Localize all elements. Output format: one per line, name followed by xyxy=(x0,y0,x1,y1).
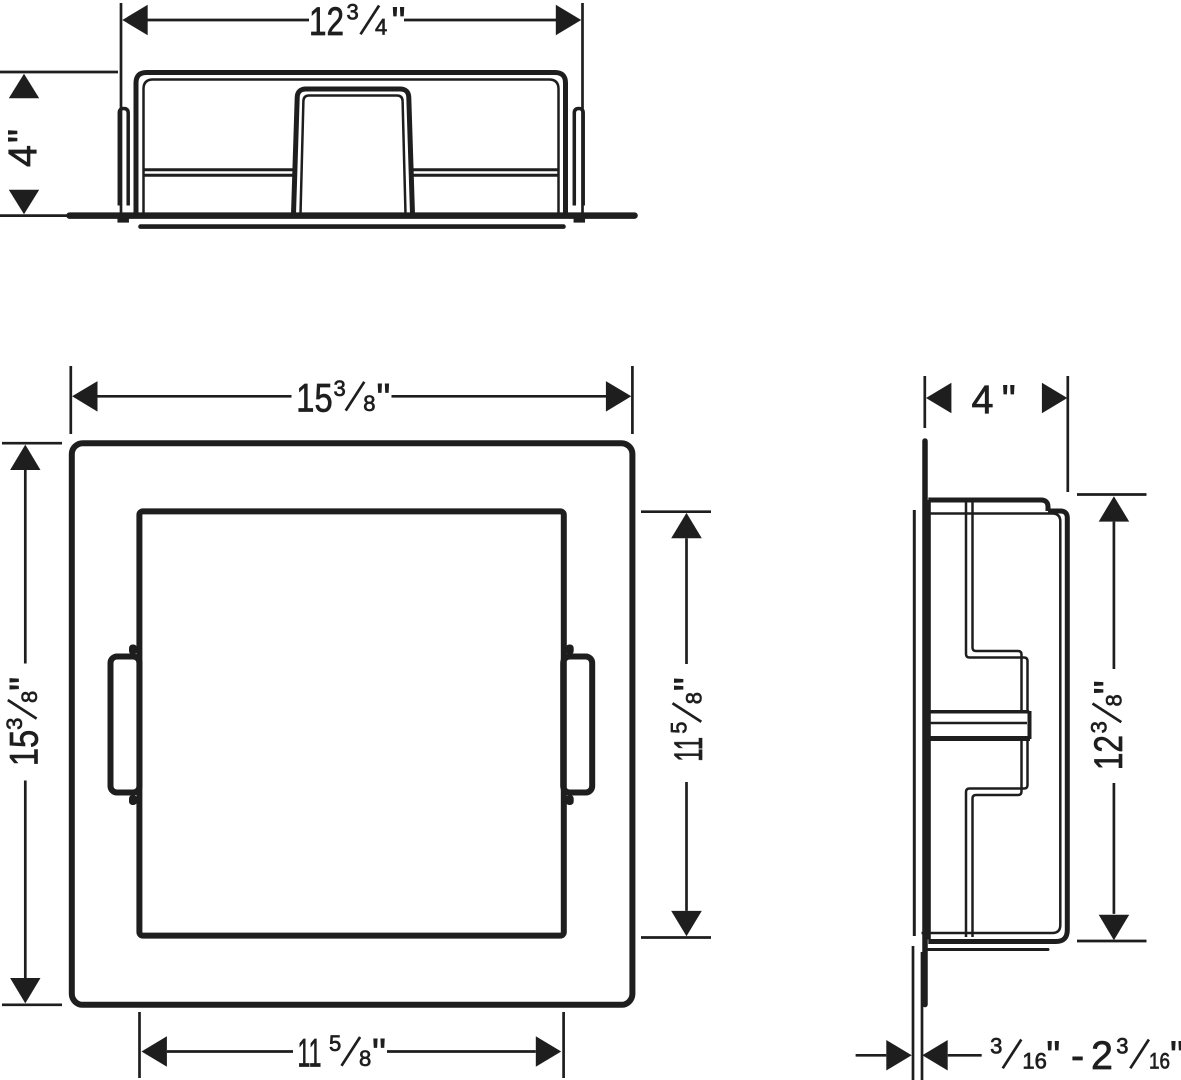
svg-text:15: 15 xyxy=(3,730,47,766)
svg-text:": " xyxy=(1002,378,1016,422)
svg-text:16: 16 xyxy=(1149,1049,1170,1074)
svg-text:3: 3 xyxy=(1087,721,1112,733)
svg-text:3: 3 xyxy=(334,376,346,401)
svg-text:5: 5 xyxy=(667,722,692,734)
svg-text:11: 11 xyxy=(667,737,711,762)
svg-text:3: 3 xyxy=(1116,1034,1128,1059)
svg-text:8: 8 xyxy=(363,391,375,416)
svg-text:8: 8 xyxy=(1102,694,1127,706)
svg-text:11: 11 xyxy=(298,1032,322,1076)
svg-text:": " xyxy=(372,1032,386,1076)
svg-text:4: 4 xyxy=(972,378,994,422)
svg-text:": " xyxy=(667,677,711,691)
svg-text:3: 3 xyxy=(347,0,359,25)
svg-text:": " xyxy=(1087,680,1131,694)
svg-text:4: 4 xyxy=(1,145,45,167)
svg-text:": " xyxy=(1,129,45,143)
svg-text:8: 8 xyxy=(17,691,42,703)
svg-text:15: 15 xyxy=(296,377,332,421)
svg-text:": " xyxy=(1046,1034,1060,1078)
svg-text:4: 4 xyxy=(375,15,387,40)
svg-text:8: 8 xyxy=(359,1046,371,1071)
svg-text:": " xyxy=(1170,1034,1181,1078)
svg-text:3: 3 xyxy=(990,1034,1002,1059)
svg-text:5: 5 xyxy=(329,1031,341,1056)
svg-text:-: - xyxy=(1071,1034,1084,1078)
svg-text:12: 12 xyxy=(309,0,344,44)
svg-text:": " xyxy=(376,377,390,421)
svg-text:": " xyxy=(3,677,47,691)
svg-text:3: 3 xyxy=(2,718,27,730)
svg-text:2: 2 xyxy=(1091,1034,1113,1078)
svg-text:": " xyxy=(392,0,406,44)
svg-text:16: 16 xyxy=(1022,1049,1046,1074)
svg-text:8: 8 xyxy=(682,692,707,704)
svg-text:12: 12 xyxy=(1087,735,1131,770)
